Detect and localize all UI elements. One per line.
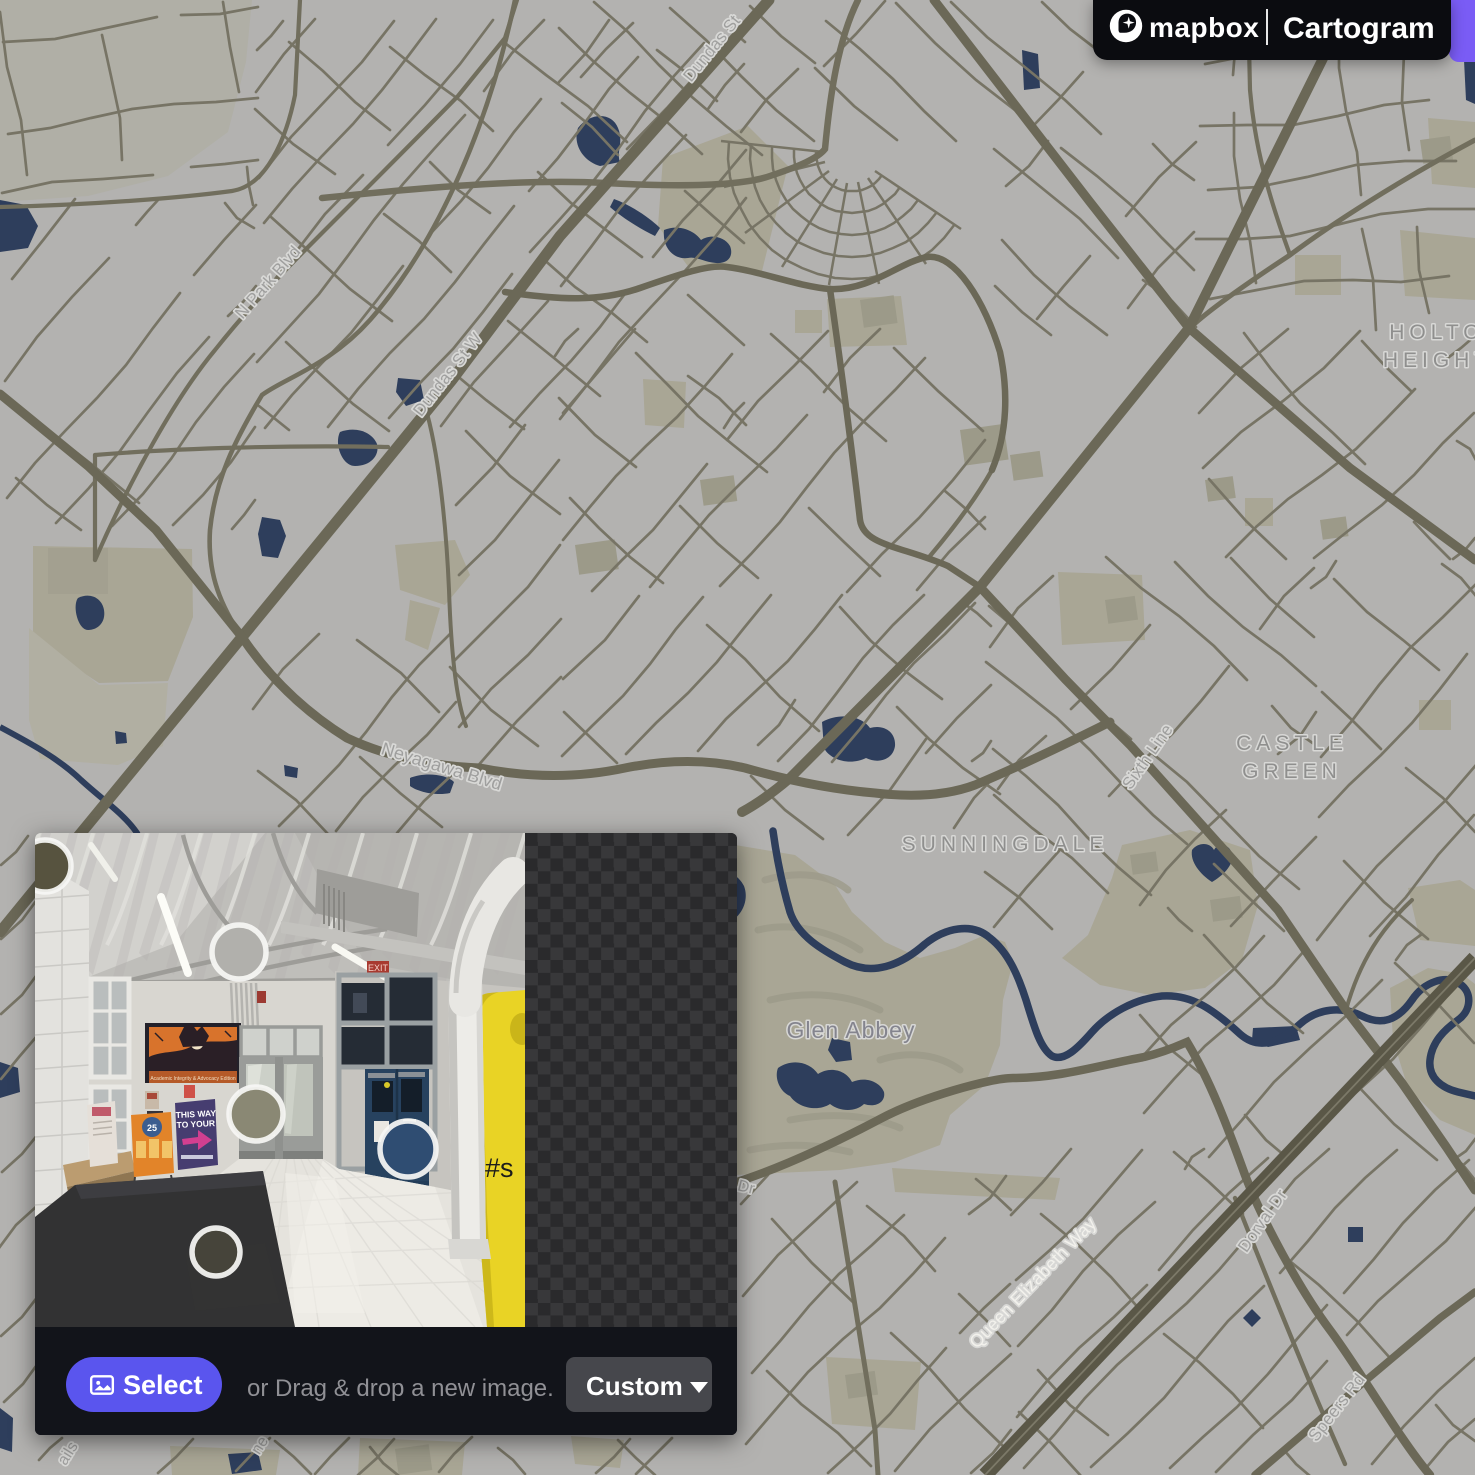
svg-text:25: 25 xyxy=(147,1123,157,1133)
svg-text:EXIT: EXIT xyxy=(368,963,389,973)
svg-text:#s: #s xyxy=(485,1153,514,1183)
svg-text:HOLTON: HOLTON xyxy=(1389,321,1475,344)
svg-text:Academic Integrity & Advocacy: Academic Integrity & Advocacy Edition xyxy=(150,1076,236,1082)
svg-text:HEIGHTS: HEIGHTS xyxy=(1383,349,1475,372)
svg-text:CASTLE: CASTLE xyxy=(1236,732,1348,755)
svg-text:SUNNINGDALE: SUNNINGDALE xyxy=(902,833,1109,856)
svg-text:GREEN: GREEN xyxy=(1242,760,1342,783)
svg-text:TO YOUR: TO YOUR xyxy=(176,1118,215,1130)
svg-text:Glen Abbey: Glen Abbey xyxy=(787,1017,916,1043)
